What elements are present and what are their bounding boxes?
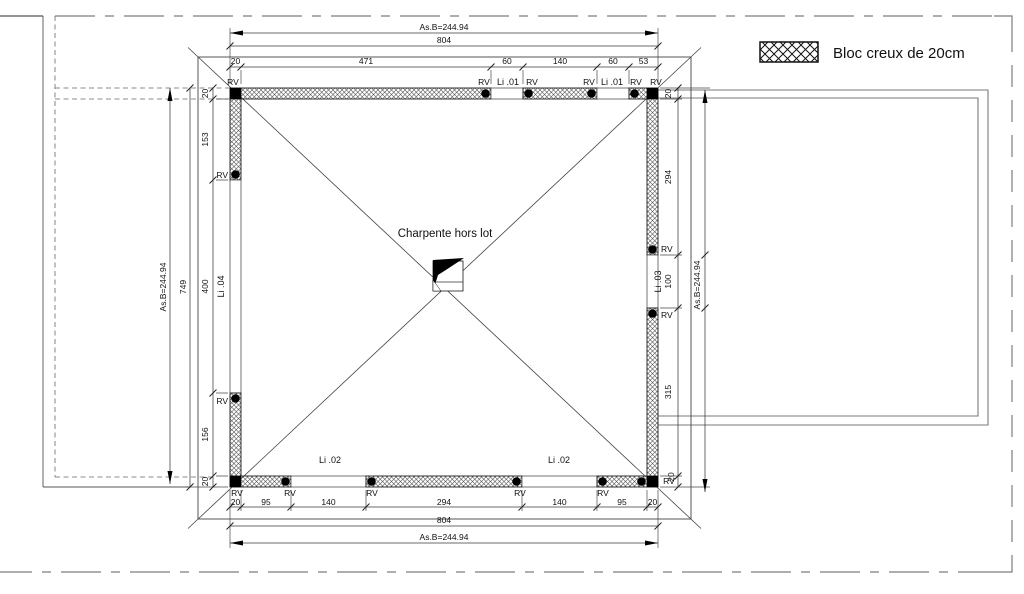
dimensions-right-text: 20 294 100 315 20 Li .03 As.B=244.94 RV … [653,89,702,486]
dim-bottom-seg-label: 20 [648,497,658,507]
wall-opening [230,180,241,393]
dim-right-seg-label: 294 [663,170,673,184]
wall-segment [230,393,241,487]
dim-bottom-seg-label: 95 [617,497,627,507]
rv-label: RV [650,77,662,87]
arrowhead [230,31,243,36]
left-annex-dashed [55,16,230,477]
dimensions-bottom-text: Li .02 Li .02 RV RV RV RV RV 20 95 140 2… [231,455,658,542]
rv-label: RV [284,488,296,498]
dim-right-seg-label: 20 [663,89,673,99]
wall-segment [230,88,491,99]
dim-left-seg-label: 153 [200,132,210,146]
left-annex-outline [0,16,230,487]
rv-post-corner [647,88,658,99]
dim-bottom-seg-label: 20 [231,497,241,507]
dim-bottom-seg-label: 140 [321,497,335,507]
rv-post [630,89,639,98]
legend-label: Bloc creux de 20cm [833,45,965,62]
rv-post [637,477,646,486]
dim-top-total-label: 804 [437,35,451,45]
li02-label: Li .02 [319,455,341,465]
dim-left-seg-label: 20 [200,89,210,99]
right-annex-inner [658,98,978,416]
wall-opening [597,88,629,99]
rv-label: RV [661,310,673,320]
rv-post [524,89,533,98]
rv-label: RV [663,476,675,486]
wall-segment [230,88,241,180]
dim-bottom-total-label: 804 [437,515,451,525]
rv-post-corner [647,476,658,487]
dim-top-seg-label: 471 [359,56,373,66]
arrowhead [645,31,658,36]
rv-label: RV [630,77,642,87]
rv-label: RV [514,488,526,498]
charpente-note: Charpente hors lot [398,228,493,240]
dim-bottom-asb-label: As.B=244.94 [420,532,469,542]
rv-label: RV [478,77,490,87]
dim-left-seg-label: 20 [200,477,210,487]
wall-segment [647,308,658,487]
dim-left-asb-label: As.B=244.94 [158,262,168,311]
wall-segment [523,88,597,99]
dim-right-seg-label: 315 [663,385,673,399]
dim-bottom-seg-label: 294 [437,497,451,507]
rv-post [281,477,290,486]
rv-post [231,170,240,179]
floor-plan-drawing: As.B=244.94 804 20 471 60 140 60 53 RV R… [0,0,1024,594]
dim-top-seg-label: 20 [231,56,241,66]
right-annex-outer [658,90,988,425]
arrowhead [645,541,658,546]
arrowhead [230,541,243,546]
apex-symbol [433,258,464,291]
li02-label: Li .02 [548,455,570,465]
legend-hatch-swatch [760,42,818,62]
border-top-right-corner [994,16,1012,30]
dimensions-left-text: As.B=244.94 749 20 153 400 156 20 Li .04… [158,89,228,487]
rv-post [648,309,657,318]
rv-post-corner [230,88,241,99]
arrowhead [703,479,708,492]
wall-opening [522,476,597,487]
arrowhead [168,88,173,101]
dim-top-seg-label: 140 [553,56,567,66]
rv-post [598,477,607,486]
rv-label: RV [216,396,228,406]
wall-opening [291,476,366,487]
rv-post [367,477,376,486]
legend: Bloc creux de 20cm [760,42,965,62]
wall-segment [366,476,522,487]
dim-left-seg-label: 156 [200,427,210,441]
drawing-sheet: As.B=244.94 804 20 471 60 140 60 53 RV R… [0,0,1024,594]
rv-label: RV [583,77,595,87]
rv-post [587,89,596,98]
rv-post-corner [230,476,241,487]
dim-left-seg-label: 400 [200,279,210,293]
li04-label: Li .04 [216,275,226,297]
rv-label: RV [597,488,609,498]
dim-right-seg-label: 100 [663,274,673,288]
dim-bottom-seg-label: 140 [552,497,566,507]
rv-post [481,89,490,98]
rv-post [648,245,657,254]
dim-left-total-label: 749 [178,280,188,294]
rv-label: RV [216,170,228,180]
li01-label: Li .01 [601,77,623,87]
rv-label: RV [366,488,378,498]
arrowhead [703,90,708,103]
rv-post [231,394,240,403]
border-bottom-right-corner [998,556,1012,572]
left-annex-solid [0,16,190,487]
dim-top-seg-label: 53 [639,56,649,66]
dim-right-asb-label: As.B=244.94 [692,260,702,309]
rv-label: RV [661,244,673,254]
rv-post [512,477,521,486]
rv-label: RV [526,77,538,87]
dim-top-seg-label: 60 [608,56,618,66]
li01-label: Li .01 [497,77,519,87]
arrowhead [168,471,173,484]
dim-top-asb-label: As.B=244.94 [420,22,469,32]
rv-label: RV [227,77,239,87]
li03-label: Li .03 [653,270,663,292]
dim-bottom-seg-label: 95 [261,497,271,507]
dim-top-seg-label: 60 [502,56,512,66]
wall-opening [491,88,523,99]
wall-segment [647,88,658,255]
right-annex-outline [658,90,988,425]
